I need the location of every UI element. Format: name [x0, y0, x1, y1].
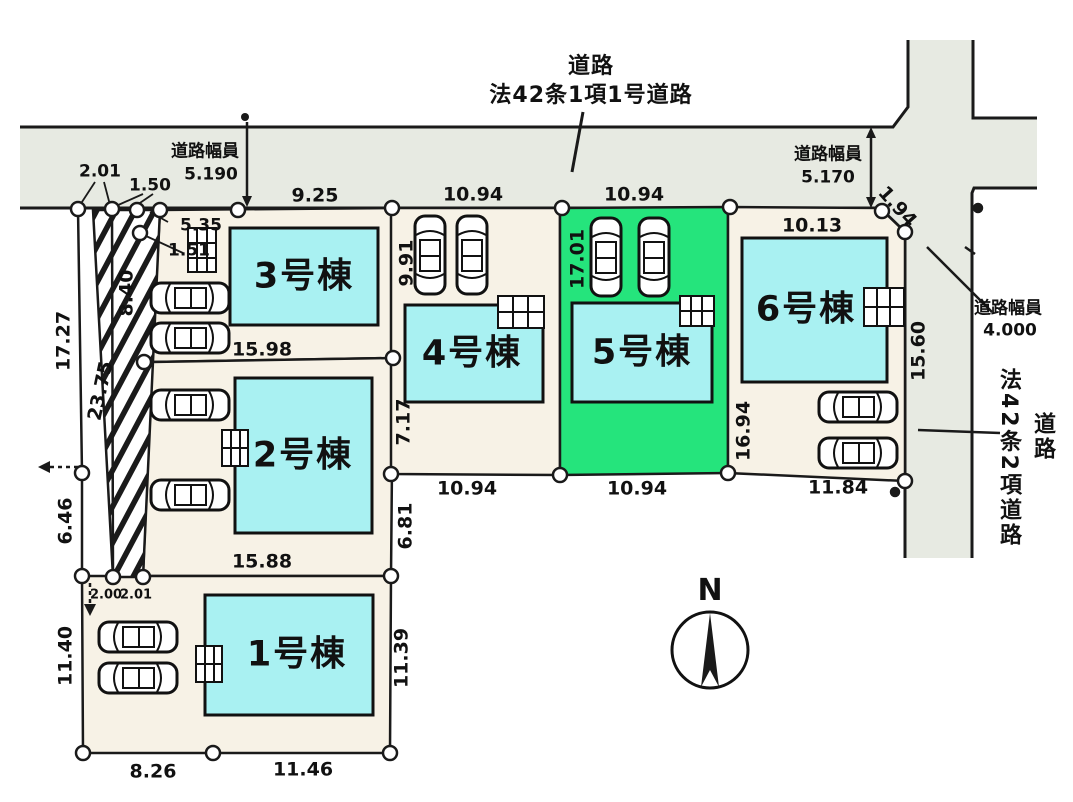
- dim-15-88: 15.88: [232, 553, 292, 572]
- compass-needle: [701, 613, 719, 687]
- west-boundary-line: [78, 209, 82, 576]
- dim-11-40: 11.40: [57, 626, 76, 686]
- side-road-subtitle: 法42条2項道路: [997, 368, 1019, 548]
- dim-16-94: 16.94: [735, 401, 754, 461]
- road-width-right-label: 道路幅員: [974, 301, 1042, 318]
- dim-6-46: 6.46: [57, 498, 76, 545]
- dim-10-94-bottom-b: 10.94: [607, 480, 667, 499]
- dim-6-81: 6.81: [397, 503, 416, 550]
- site-plan-canvas: [0, 0, 1073, 802]
- building-3-label: 3号棟: [254, 260, 354, 295]
- dim-5-35: 5.35: [180, 218, 222, 235]
- building-6-label: 6号棟: [756, 293, 856, 328]
- dim-10-94-top-a: 10.94: [443, 186, 503, 205]
- road-width-center-label: 道路幅員: [794, 147, 862, 164]
- dim-2-01-top: 2.01: [79, 164, 121, 181]
- building-2-label: 2号棟: [253, 439, 353, 474]
- building-1-label: 1号棟: [247, 638, 347, 673]
- top-road-subtitle: 法42条1項1号道路: [489, 85, 692, 107]
- road-width-right-value: 4.000: [983, 323, 1037, 340]
- road-width-left-value: 5.190: [184, 167, 238, 184]
- dim-17-01: 17.01: [569, 229, 588, 289]
- dim-8-40: 8.40: [118, 270, 137, 317]
- dim-1-50: 1.50: [129, 178, 171, 195]
- dim-17-27: 17.27: [55, 311, 74, 371]
- dim-2-01-bottom: 2.01: [120, 589, 152, 602]
- dim-11-84: 11.84: [808, 479, 868, 498]
- dim-9-25: 9.25: [292, 187, 339, 206]
- dim-8-26: 8.26: [130, 763, 177, 782]
- building-4-label: 4号棟: [422, 337, 522, 372]
- dim-10-94-top-b: 10.94: [604, 186, 664, 205]
- top-road-title: 道路: [568, 56, 614, 78]
- road-width-left-label: 道路幅員: [171, 144, 239, 161]
- dim-11-46: 11.46: [273, 761, 333, 780]
- dim-10-13: 10.13: [782, 217, 842, 236]
- dim-11-39: 11.39: [393, 628, 412, 688]
- dim-7-17: 7.17: [395, 399, 414, 446]
- dim-10-94-bottom-a: 10.94: [437, 480, 497, 499]
- dim-15-60: 15.60: [910, 321, 929, 381]
- site-plan: 道路 法42条1項1号道路 道路幅員 5.190 道路幅員 5.170 道路幅員…: [0, 0, 1073, 802]
- compass-north-label: N: [697, 576, 722, 606]
- side-road-title: 道路: [1031, 412, 1053, 462]
- compass: [672, 612, 748, 688]
- dim-15-98: 15.98: [232, 341, 292, 360]
- building-5-label: 5号棟: [592, 336, 692, 371]
- road-width-center-value: 5.170: [801, 170, 855, 187]
- dim-9-91: 9.91: [398, 240, 417, 287]
- dim-2-00-bottom: 2.00: [90, 589, 122, 602]
- dim-1-51: 1.51: [168, 243, 210, 260]
